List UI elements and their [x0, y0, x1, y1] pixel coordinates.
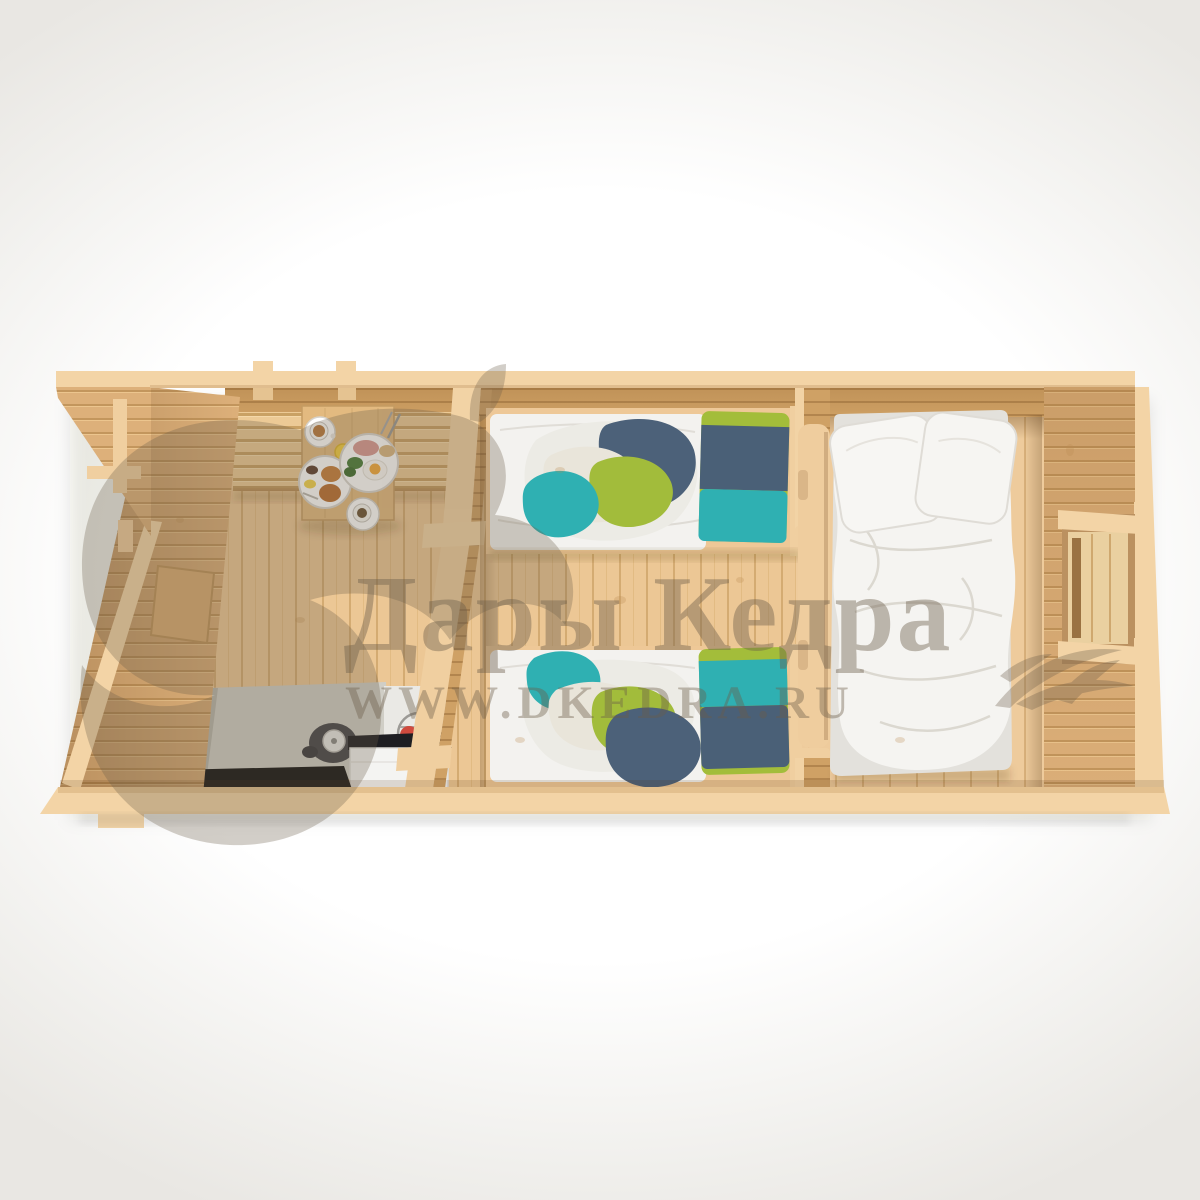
bed-pillows	[827, 410, 1018, 535]
watermark-title: Дары Кедра	[343, 555, 952, 674]
pillow-white-right	[913, 410, 1019, 526]
watermark-url: WWW.DKEDRA.RU	[345, 677, 855, 729]
right-outer-edge	[1135, 387, 1164, 795]
right-wall-floor-shadow	[1024, 415, 1042, 795]
window-slit	[1072, 538, 1081, 638]
overhang-cut-edge	[56, 371, 152, 387]
pillow1-navy	[700, 425, 790, 491]
log-end-tab	[336, 361, 356, 372]
pillow1-teal	[698, 489, 787, 543]
log-end-notch	[253, 388, 273, 400]
log-end-tab	[253, 361, 273, 372]
right-wall	[1044, 387, 1150, 795]
top-edge-underline	[150, 385, 1135, 388]
cabin-top-view-render: Дары Кедра WWW.DKEDRA.RU	[0, 0, 1200, 1200]
log-end-notch	[338, 388, 356, 400]
pillow-striped	[698, 411, 789, 543]
partition1-lower-beam	[396, 745, 452, 771]
blanket-pile	[523, 419, 698, 541]
product-render-page: Дары Кедра WWW.DKEDRA.RU	[0, 0, 1200, 1200]
headboard-notch	[798, 470, 808, 500]
